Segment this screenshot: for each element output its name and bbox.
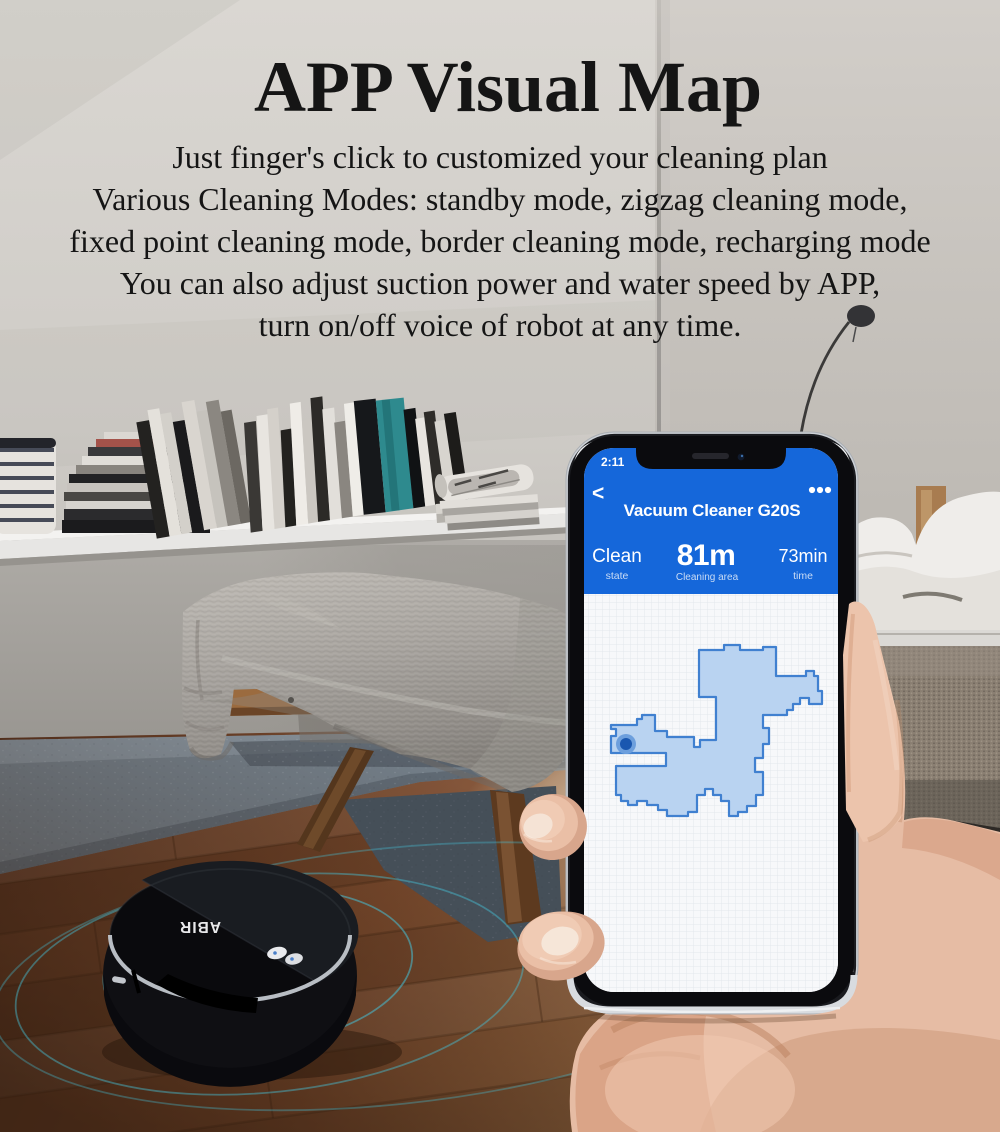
svg-text:<: < xyxy=(592,482,604,505)
svg-text:ABIR: ABIR xyxy=(179,918,221,935)
svg-text:73min: 73min xyxy=(778,546,827,566)
svg-text:81m: 81m xyxy=(677,539,736,572)
svg-text:Vacuum Cleaner G20S: Vacuum Cleaner G20S xyxy=(624,501,801,520)
svg-text:state: state xyxy=(606,570,629,582)
svg-text:Clean: Clean xyxy=(592,546,642,567)
svg-text:Cleaning area: Cleaning area xyxy=(676,572,739,583)
svg-text:2:11: 2:11 xyxy=(601,455,625,469)
svg-text:time: time xyxy=(793,570,813,582)
